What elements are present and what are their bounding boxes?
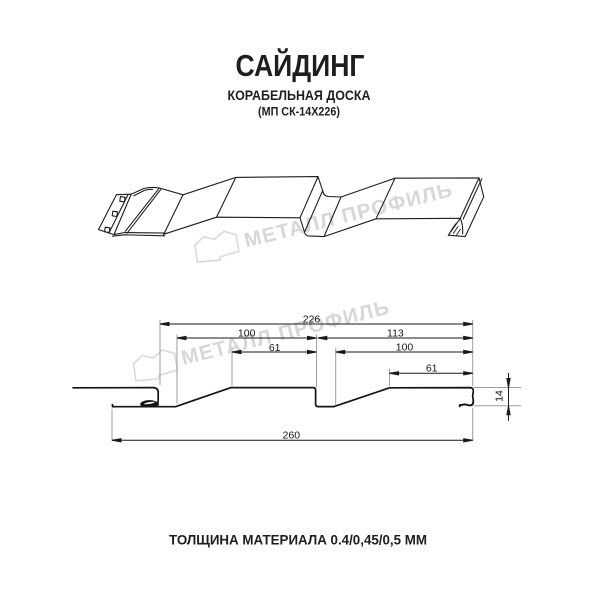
- svg-text:КОРАБЕЛЬНАЯ ДОСКА: КОРАБЕЛЬНАЯ ДОСКА: [228, 87, 371, 103]
- svg-text:САЙДИНГ: САЙДИНГ: [236, 47, 365, 83]
- svg-text:61: 61: [426, 362, 438, 374]
- svg-text:100: 100: [396, 342, 414, 354]
- svg-text:113: 113: [387, 327, 404, 339]
- svg-text:100: 100: [238, 328, 256, 340]
- svg-text:226: 226: [303, 313, 321, 325]
- svg-text:ТОЛЩИНА МАТЕРИАЛА 0.4/0,45/0,5: ТОЛЩИНА МАТЕРИАЛА 0.4/0,45/0,5 ММ: [169, 532, 427, 548]
- svg-text:(МП СК-14Х226): (МП СК-14Х226): [258, 107, 340, 119]
- svg-text:61: 61: [269, 342, 281, 354]
- svg-text:260: 260: [283, 430, 301, 442]
- svg-text:14: 14: [493, 390, 505, 402]
